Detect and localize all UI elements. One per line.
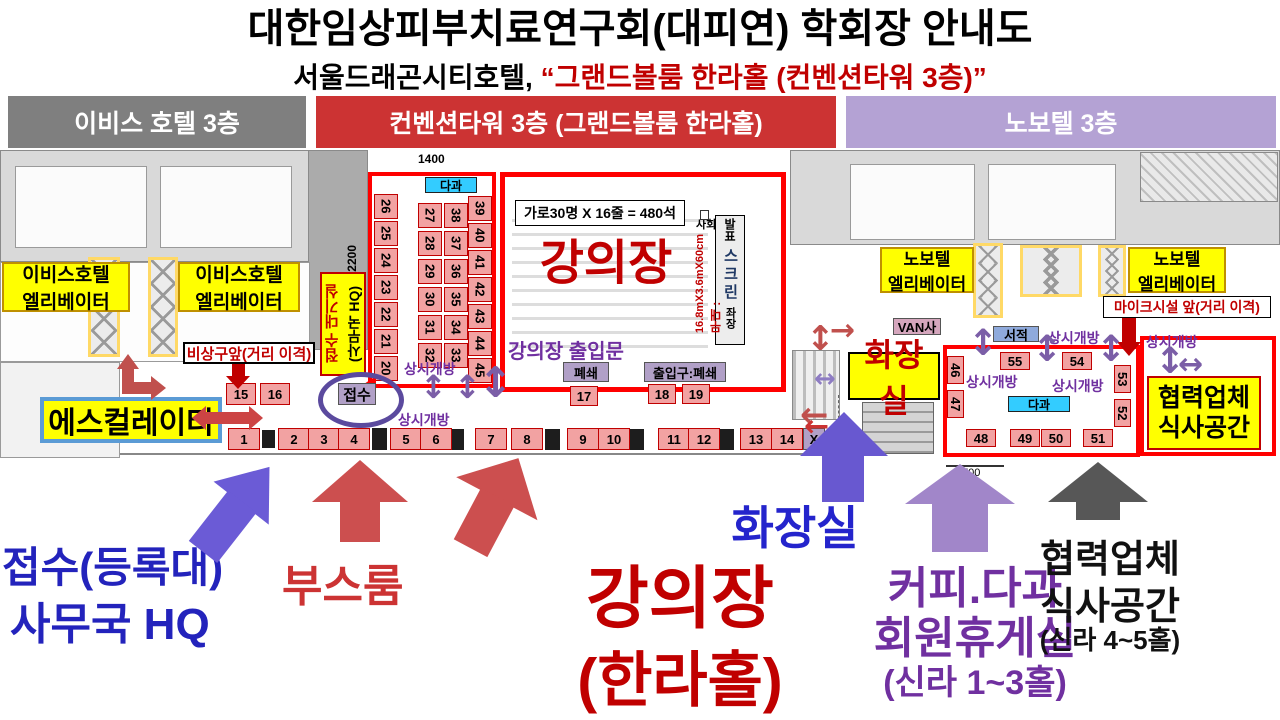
header-convention: 컨벤션타워 3층 (그랜드볼룸 한라홀) xyxy=(316,96,836,148)
booth-23: 23 xyxy=(374,275,398,300)
partner-dining-label: 협력업체 식사공간 xyxy=(1147,376,1261,450)
restroom-open-arrow: ↔ xyxy=(814,366,836,392)
open-arrow: ↕ xyxy=(454,371,481,403)
open-arrow: ↕ xyxy=(1096,332,1126,368)
coffee-tea-table: 다과 xyxy=(1008,396,1070,412)
booth-col-27-32: 272829303132 xyxy=(418,203,442,368)
header-novotel: 노보텔 3층 xyxy=(846,96,1276,148)
booth-room-tea-table: 다과 xyxy=(425,177,477,193)
escalator-arrow-shaft xyxy=(205,412,249,424)
legend-partner-line3: (신라 4~5홀) xyxy=(1030,620,1190,657)
booth-19: 19 xyxy=(682,384,710,404)
open-arrow-horizontal: ↔ xyxy=(1178,350,1203,380)
restroom-route-arrow: → xyxy=(830,316,855,346)
escalator-arrow-right xyxy=(249,406,263,430)
booth-13: 13 xyxy=(740,428,772,450)
booth-4: 4 xyxy=(338,428,370,450)
reception-waiting-line2: (사무국 HQ) xyxy=(344,284,364,363)
entrance-closed-label: 출입구:폐쇄 xyxy=(644,362,726,382)
mic-notice-label: 마이크시설 앞(거리 이격) xyxy=(1103,296,1271,318)
booth-5: 5 xyxy=(390,428,422,450)
booth-28: 28 xyxy=(418,231,442,256)
booth-44: 44 xyxy=(468,331,492,356)
legend-booth-room: 부스룸 xyxy=(282,550,403,614)
reception-highlight-ellipse xyxy=(318,372,404,428)
booth-49: 49 xyxy=(1010,429,1040,447)
coffee-arrow xyxy=(905,464,1015,552)
booth-10: 10 xyxy=(598,428,630,450)
booth-29: 29 xyxy=(418,259,442,284)
presenter-label: 발표 xyxy=(722,218,739,242)
novotel-elevator-shaft xyxy=(1020,245,1082,297)
booth-col-39-45: 39404142434445 xyxy=(468,196,492,383)
booth-8: 8 xyxy=(511,428,543,450)
roof-hatch xyxy=(1140,152,1278,202)
page-subtitle: 서울드래곤시티호텔, “그랜드볼룸 한라홀 (컨벤션타워 3층)” xyxy=(0,56,1280,96)
booth-35: 35 xyxy=(444,287,468,312)
always-open-label: 상시개방 xyxy=(1052,376,1104,396)
mic-icon xyxy=(700,210,709,220)
booth-col-20s: 26252423222120 xyxy=(374,194,398,381)
booth-17: 17 xyxy=(570,386,598,406)
restroom-arrow xyxy=(800,412,888,502)
emergency-arrow-shaft xyxy=(232,364,245,376)
host-label: 사회 xyxy=(696,220,716,232)
booth-col-38-33: 383736353433 xyxy=(444,203,468,368)
open-arrow: ↕ xyxy=(968,326,998,362)
booth-30: 30 xyxy=(418,287,442,312)
partner-arrow xyxy=(1048,462,1148,520)
booth-43: 43 xyxy=(468,304,492,329)
open-arrow: ↕ xyxy=(478,362,513,404)
booth-47: 47 xyxy=(947,390,964,418)
booth-col-46-47: 4647 xyxy=(947,356,964,418)
ibis-room xyxy=(15,166,147,248)
booth-50: 50 xyxy=(1041,429,1071,447)
booth-16: 16 xyxy=(260,383,290,405)
stage-size-label: 16.8mX3.6mX60cm 무대 : xyxy=(694,234,724,333)
chair-label: 좌장 xyxy=(722,307,738,329)
novotel-room xyxy=(850,164,975,240)
booth-9: 9 xyxy=(567,428,599,450)
venue-map: 대한임상피부치료연구회(대피연) 학회장 안내도 서울드래곤시티호텔, “그랜드… xyxy=(0,0,1280,720)
booth-18: 18 xyxy=(648,384,676,404)
booths-48-51: 48495051 xyxy=(966,429,1113,447)
booth-55: 55 xyxy=(1000,352,1030,370)
booth-25: 25 xyxy=(374,221,398,246)
booth-40: 40 xyxy=(468,223,492,248)
booth-52: 52 xyxy=(1114,399,1131,427)
booth-6: 6 xyxy=(420,428,452,450)
reception-waiting-line1: 접수 대기실 xyxy=(322,284,343,363)
booth-col-53-52: 5352 xyxy=(1114,365,1131,427)
novotel-elevator-label: 노보텔 엘리베이터 xyxy=(1128,247,1226,293)
page-title: 대한임상피부치료연구회(대피연) 학회장 안내도 xyxy=(0,8,1280,50)
subtitle-hall: “그랜드볼룸 한라홀 (컨벤션타워 3층)” xyxy=(541,62,987,93)
subtitle-hotel: 서울드래곤시티호텔, xyxy=(293,62,533,93)
floor-plan: 이비스호텔 엘리베이터 이비스호텔 엘리베이터 비상구앞(거리 이격) 1516… xyxy=(0,150,1280,462)
always-open-label: 상시개방 xyxy=(398,410,450,430)
ibis-room xyxy=(160,166,292,248)
novotel-elevator-label: 노보텔 엘리베이터 xyxy=(880,247,974,293)
open-arrow: ↕ xyxy=(420,371,447,403)
open-arrow: ↕ xyxy=(1032,332,1062,368)
booth-27: 27 xyxy=(418,203,442,228)
booth-39: 39 xyxy=(468,196,492,221)
dim-1400: 1400 xyxy=(418,153,445,166)
booth-51: 51 xyxy=(1083,429,1113,447)
hall-name-label: 강의장 xyxy=(508,232,704,296)
booth-room-arrow xyxy=(312,460,408,542)
restroom-plan-label: 화장실 xyxy=(848,352,940,400)
booth-36: 36 xyxy=(444,259,468,284)
ibis-elevator-label: 이비스호텔 엘리베이터 xyxy=(178,262,300,312)
novotel-elevator-shaft xyxy=(1098,245,1126,297)
emergency-exit-label: 비상구앞(거리 이격) xyxy=(183,342,315,364)
booth-24: 24 xyxy=(374,248,398,273)
booth-22: 22 xyxy=(374,302,398,327)
capacity-label: 가로30명 X 16줄 = 480석 xyxy=(515,200,685,226)
legend-reception-line2: 사무국 HQ xyxy=(10,588,210,652)
legend-hall-line2: (한라홀) xyxy=(510,632,850,719)
novotel-elevator-shaft xyxy=(973,243,1003,318)
booth-37: 37 xyxy=(444,231,468,256)
dim-2200: 2200 xyxy=(346,245,359,272)
booth-21: 21 xyxy=(374,329,398,354)
booth-12: 12 xyxy=(688,428,720,450)
booths-18-19: 1819 xyxy=(648,384,710,404)
booth-42: 42 xyxy=(468,277,492,302)
booth-3: 3 xyxy=(308,428,340,450)
booth-41: 41 xyxy=(468,250,492,275)
reception-waiting-label: 접수 대기실 (사무국 HQ) xyxy=(320,272,366,376)
closed-label: 폐쇄 xyxy=(563,362,609,382)
booth-14: 14 xyxy=(771,428,803,450)
route-elbow-shaft2 xyxy=(130,382,152,394)
booth-2: 2 xyxy=(278,428,310,450)
always-open-label: 상시개방 xyxy=(966,372,1018,392)
novotel-room xyxy=(988,164,1116,240)
booth-54: 54 xyxy=(1062,352,1092,370)
route-arrow-up xyxy=(117,354,139,369)
booth-31: 31 xyxy=(418,315,442,340)
ibis-elevator-label: 이비스호텔 엘리베이터 xyxy=(2,262,130,312)
route-arrow-right xyxy=(151,376,166,400)
booth-46: 46 xyxy=(947,356,964,384)
booth-34: 34 xyxy=(444,315,468,340)
emergency-arrow-down xyxy=(226,376,250,389)
booth-11: 11 xyxy=(658,428,690,450)
booth-26: 26 xyxy=(374,194,398,219)
ibis-elevator-shaft xyxy=(148,257,178,357)
booth-38: 38 xyxy=(444,203,468,228)
header-ibis: 이비스 호텔 3층 xyxy=(8,96,306,148)
legend-coffee-line3: (신라 1~3홀) xyxy=(855,655,1095,704)
escalator-arrow-left xyxy=(192,406,206,430)
hall-door-label: 강의장 출입문 xyxy=(508,342,624,363)
booth-48: 48 xyxy=(966,429,996,447)
